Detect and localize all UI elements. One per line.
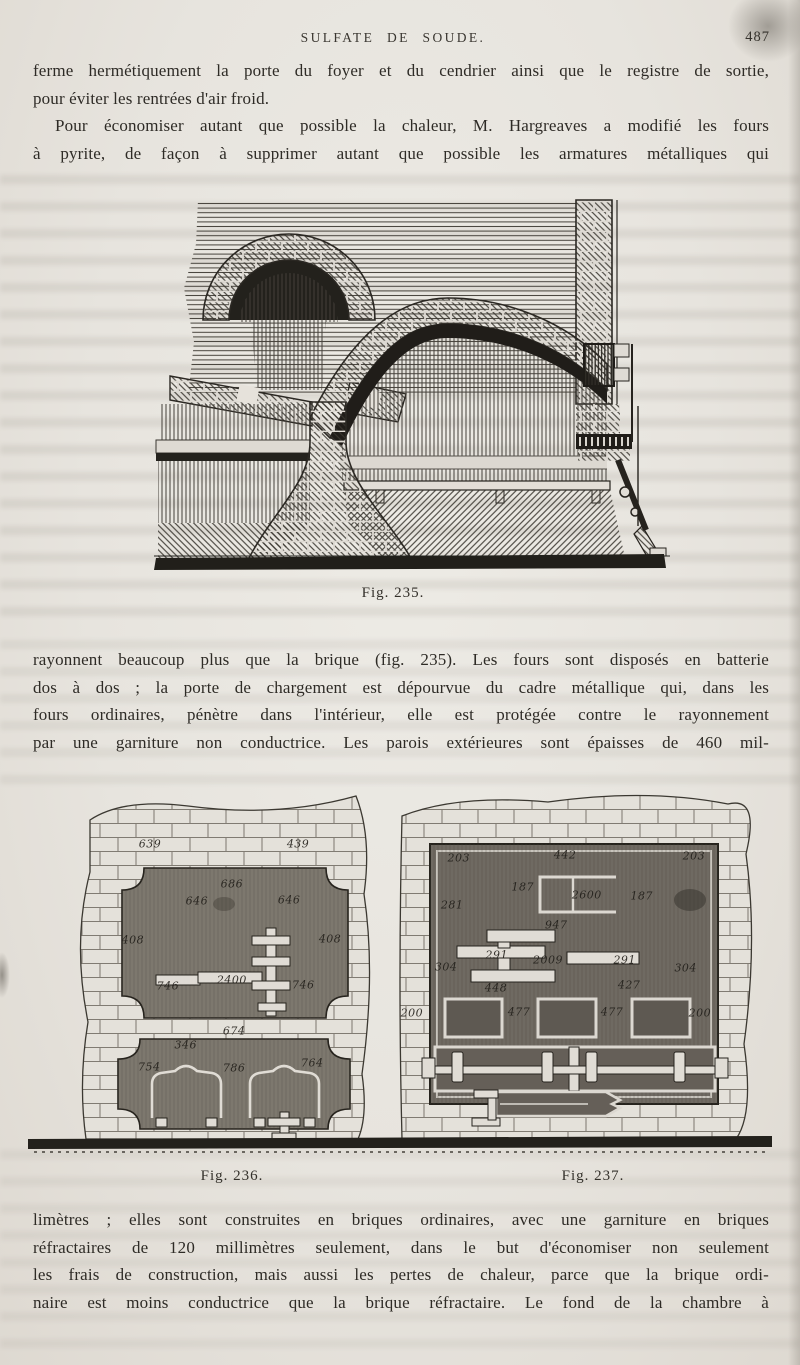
scan-smudge — [0, 952, 10, 998]
dimension-label: 786 — [223, 1062, 246, 1075]
text-line: limètres ; elles sont construites en bri… — [33, 1206, 769, 1234]
dimension-label: 200 — [401, 1007, 424, 1020]
dimension-label: 304 — [674, 961, 697, 974]
text-line: rayonnent beaucoup plus que la brique (f… — [33, 646, 769, 674]
text-line: ferme hermétiquement la porte du foyer e… — [33, 57, 769, 85]
dimension-label: 200 — [689, 1007, 712, 1020]
dimension-label: 291 — [613, 954, 636, 967]
text-line: réfractaires de 120 millimètres seulemen… — [33, 1234, 769, 1262]
dimension-label: 686 — [221, 877, 244, 890]
text-line: à pyrite, de façon à supprimer autant qu… — [33, 140, 769, 168]
text-line: les frais de construction, mais aussi le… — [33, 1261, 769, 1289]
dimension-label: 2009 — [533, 954, 563, 967]
figure-235-engraving — [152, 192, 672, 578]
text-line: pour éviter les rentrées d'air froid. — [33, 85, 769, 113]
running-header: SULFATE DE SOUDE. — [0, 30, 786, 46]
dimension-label: 477 — [601, 1006, 624, 1019]
paragraph: ferme hermétiquement la porte du foyer e… — [33, 57, 769, 112]
dimension-label: 639 — [139, 838, 162, 851]
figure-236-237-row: 6394396866466464084087462400746674346754… — [28, 782, 772, 1156]
dimension-label: 646 — [186, 894, 209, 907]
dimension-label: 281 — [441, 898, 464, 911]
dimension-label: 408 — [319, 932, 342, 945]
dimension-label: 477 — [508, 1006, 531, 1019]
dimension-label: 746 — [292, 979, 315, 992]
dimension-label: 187 — [631, 890, 654, 903]
book-page: SULFATE DE SOUDE. 487 ferme hermétiqueme… — [0, 0, 800, 1365]
dimension-label: 764 — [301, 1056, 324, 1069]
dimension-label: 2400 — [217, 974, 247, 987]
dimension-label: 408 — [122, 933, 145, 946]
text-line: Pour économiser autant que possible la c… — [33, 112, 769, 140]
page-number: 487 — [745, 29, 770, 46]
dimension-label: 646 — [278, 893, 301, 906]
text-line: par une garniture non conductrice. Les p… — [33, 729, 769, 757]
dimension-label: 674 — [223, 1025, 246, 1038]
figure-235-caption: Fig. 235. — [0, 585, 786, 602]
dimension-label: 947 — [545, 918, 568, 931]
dimension-label: 442 — [554, 848, 577, 861]
dimension-label: 187 — [512, 881, 535, 894]
dimension-label: 346 — [174, 1038, 197, 1051]
text-line: dos à dos ; la porte de chargement est d… — [33, 674, 769, 702]
dimension-label: 427 — [618, 979, 641, 992]
page-gutter-shadow — [788, 0, 800, 1365]
figure-236-caption: Fig. 236. — [132, 1168, 332, 1185]
dimension-label: 746 — [157, 980, 180, 993]
dimension-label: 291 — [485, 948, 508, 961]
text-line: fours ordinaires, pénètre dans l'intérie… — [33, 701, 769, 729]
dimension-label: 203 — [448, 851, 471, 864]
furnace-section-illustration — [152, 192, 672, 578]
dimension-label: 448 — [485, 982, 508, 995]
figure-237-caption: Fig. 237. — [493, 1168, 693, 1185]
paragraph: Pour économiser autant que possible la c… — [33, 112, 769, 167]
text-line: naire est moins conductrice que la briqu… — [33, 1289, 769, 1317]
paragraph: limètres ; elles sont construites en bri… — [33, 1206, 769, 1316]
dimension-label: 304 — [435, 961, 458, 974]
dimension-label: 2600 — [572, 888, 602, 901]
dimension-label: 439 — [287, 838, 310, 851]
paragraph: rayonnent beaucoup plus que la brique (f… — [33, 646, 769, 756]
dimension-label: 754 — [138, 1060, 161, 1073]
dimension-label: 203 — [683, 850, 706, 863]
